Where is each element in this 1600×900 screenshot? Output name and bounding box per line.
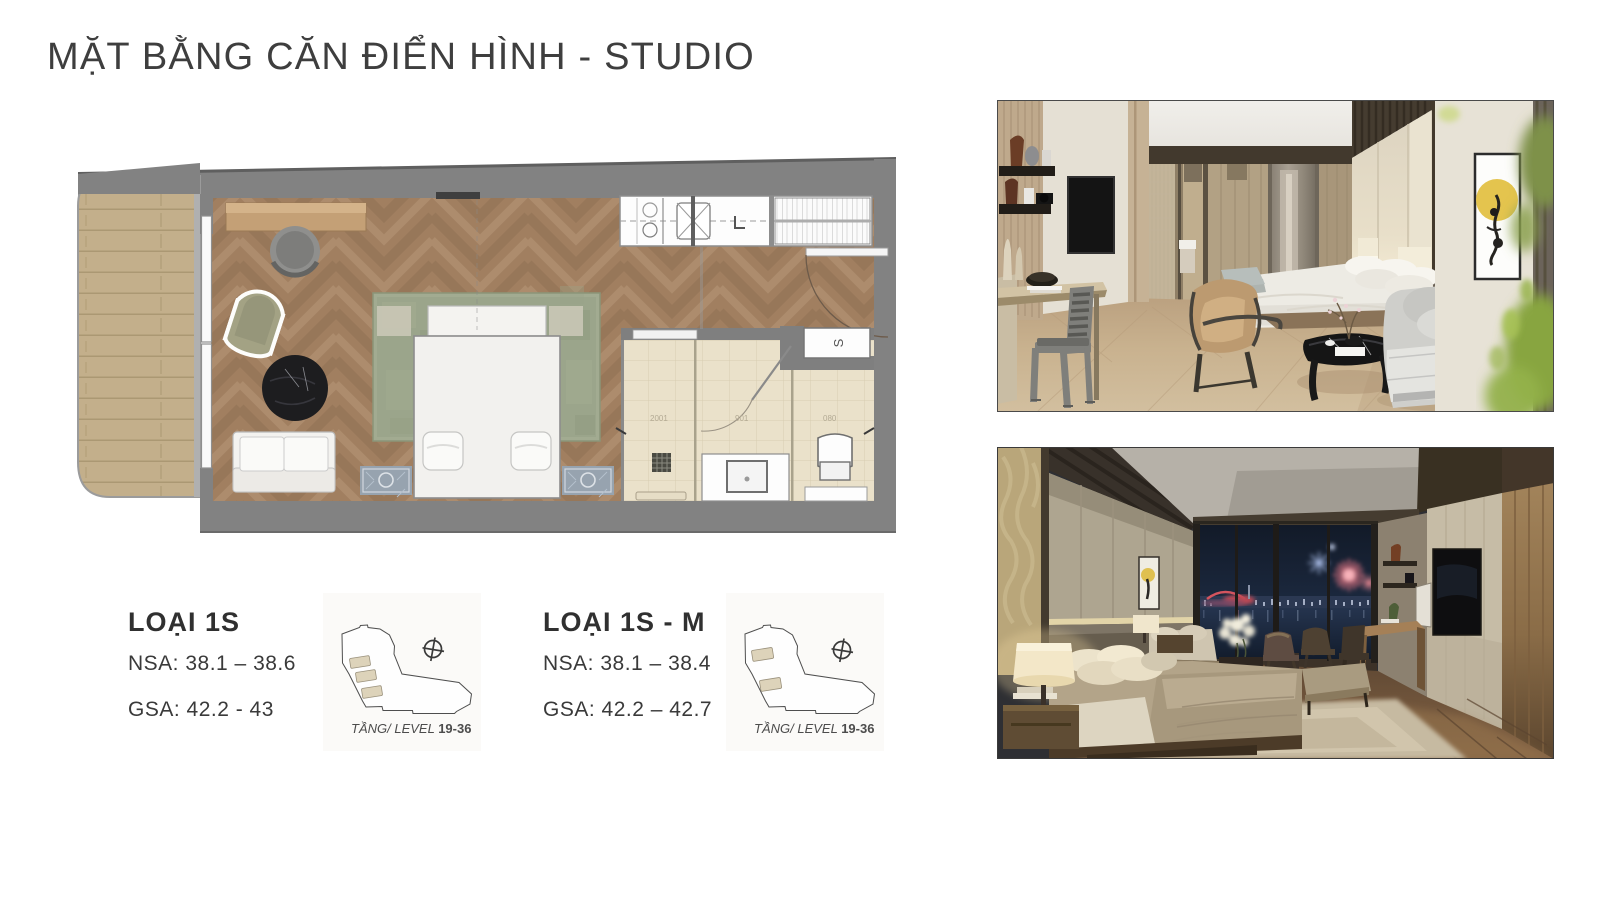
svg-text:TẦNG/ LEVEL 19-36: TẦNG/ LEVEL 19-36 — [754, 721, 874, 736]
svg-text:S: S — [831, 338, 846, 347]
svg-text:080: 080 — [823, 414, 837, 423]
svg-text:TẦNG/ LEVEL 19-36: TẦNG/ LEVEL 19-36 — [351, 721, 471, 736]
svg-text:2001: 2001 — [650, 414, 668, 423]
svg-text:901: 901 — [735, 414, 749, 423]
